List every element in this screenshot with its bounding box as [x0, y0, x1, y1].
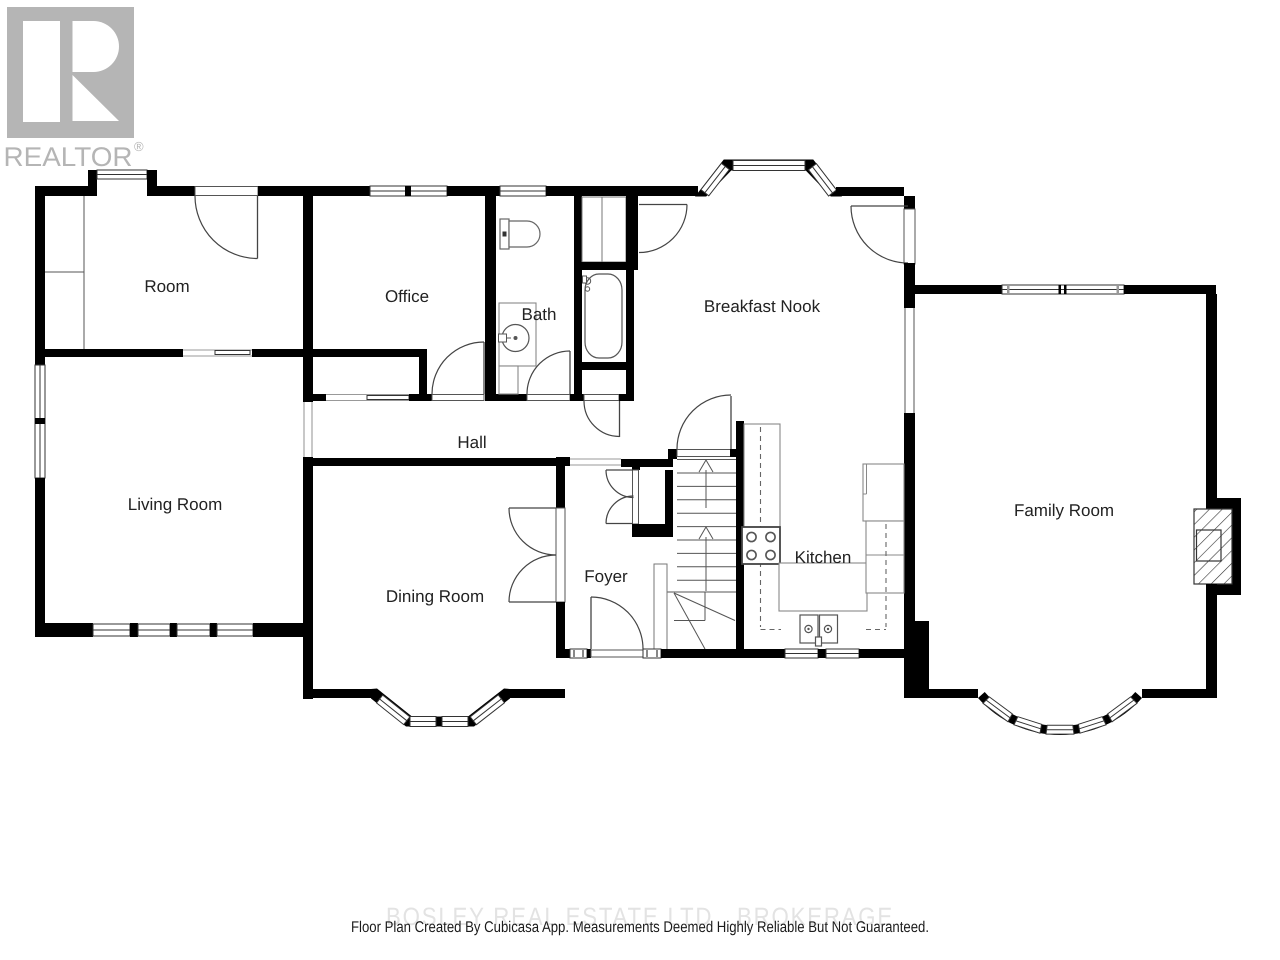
svg-text:Floor Plan Created By Cubicasa: Floor Plan Created By Cubicasa App. Meas… [351, 919, 929, 936]
svg-text:Family Room: Family Room [1014, 501, 1114, 520]
svg-text:Breakfast Nook: Breakfast Nook [704, 297, 821, 316]
svg-text:Bath: Bath [522, 305, 557, 324]
svg-text:Office: Office [385, 287, 429, 306]
svg-text:Living Room: Living Room [128, 495, 223, 514]
svg-text:Hall: Hall [457, 433, 486, 452]
svg-text:Room: Room [144, 277, 189, 296]
svg-text:Kitchen: Kitchen [795, 548, 852, 567]
svg-text:Foyer: Foyer [584, 567, 628, 586]
svg-text:®: ® [134, 139, 144, 154]
svg-text:Dining Room: Dining Room [386, 587, 484, 606]
svg-text:REALTOR: REALTOR [4, 142, 133, 172]
